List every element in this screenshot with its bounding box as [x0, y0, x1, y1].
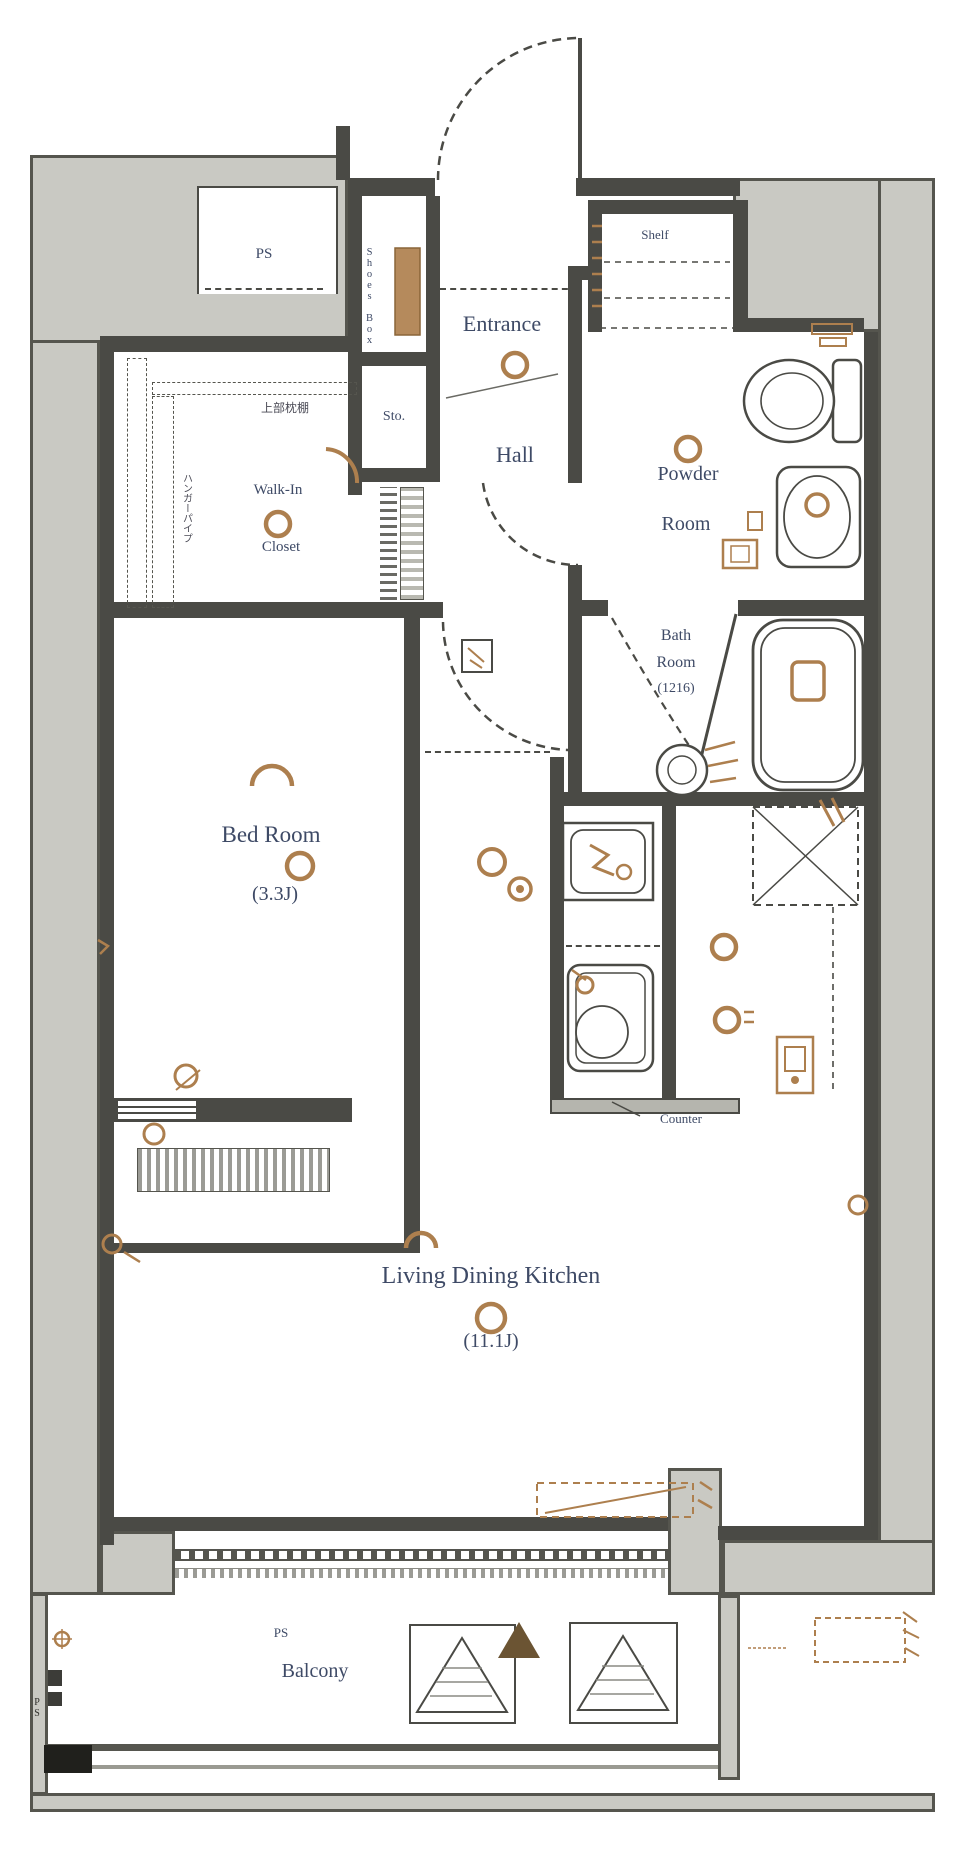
- corridor-panel-icon: [462, 640, 492, 672]
- powder-label-line1: Powder: [628, 464, 748, 485]
- bathtub-icon: [753, 620, 863, 790]
- kitchen-remote-icon: [777, 1037, 813, 1093]
- ceiling-light-bedroom: [287, 853, 313, 879]
- bath-size-label: (1216): [631, 682, 721, 697]
- evacuation-hatch-icon-2: [570, 1623, 677, 1723]
- fixtures-layer: [0, 0, 960, 1864]
- balcony-wall-fittings: [48, 1670, 62, 1706]
- air-conditioner-icon: [537, 1483, 693, 1517]
- balcony-label: Balcony: [245, 1661, 385, 1682]
- powder-label-line2: Room: [626, 514, 746, 535]
- drain-icon: [52, 1629, 72, 1649]
- entrance-door-icon: [438, 38, 580, 180]
- pipe-space-bottom-label: PS: [31, 1688, 42, 1728]
- ceiling-light-kitchen-1: [712, 935, 736, 959]
- washbasin-icon: [748, 467, 860, 567]
- ceiling-light-entrance: [503, 353, 527, 377]
- outdoor-unit-icon: [748, 1612, 919, 1662]
- bedroom-size-label: (3.3J): [195, 884, 355, 905]
- dome-light-bedroom: [252, 766, 292, 786]
- ldk-size-label: (11.1J): [331, 1331, 651, 1352]
- ceiling-light-wic: [266, 512, 290, 536]
- hall-step-line: [446, 374, 558, 398]
- powder-wall-box-icon: [723, 540, 757, 568]
- balcony-ps-label: PS: [251, 1626, 311, 1640]
- dome-light-ldk: [406, 1233, 436, 1248]
- storage-label: Sto.: [354, 410, 434, 425]
- ceiling-light-powder: [676, 437, 700, 461]
- shoes-box-label: Shoes Box: [364, 234, 375, 358]
- kitchen-switch-marks: [744, 1012, 754, 1022]
- bath-label-line2: Room: [631, 655, 721, 672]
- ceiling-light-ldk: [477, 1304, 505, 1332]
- corridor-light-icons: [479, 849, 531, 900]
- hall-label: Hall: [465, 443, 565, 466]
- wic-label-line2: Closet: [221, 540, 341, 556]
- entrance-label: Entrance: [432, 312, 572, 335]
- washing-machine-pan-icon: [563, 823, 653, 900]
- bath-label-line1: Bath: [631, 628, 721, 645]
- wic-door-arc-icon: [326, 449, 357, 483]
- evacuation-hatch-icon-1: [410, 1625, 515, 1723]
- wic-label-line1: Walk-In: [218, 483, 338, 499]
- ceiling-light-kitchen-2: [715, 1008, 739, 1032]
- ldk-label: Living Dining Kitchen: [331, 1264, 651, 1289]
- outlet-icons: [98, 940, 867, 1508]
- powder-door-icon: [483, 483, 578, 565]
- toilet-icon: [744, 324, 861, 442]
- floor-plan: PS Shelf Entrance Hall Shoes Box Sto. 上部…: [0, 0, 960, 1864]
- refrigerator-space-icon: [753, 798, 858, 905]
- wic-note-top: 上部枕棚: [225, 402, 345, 415]
- kitchen-sink-icon: [568, 965, 653, 1071]
- counter-label: Counter: [641, 1112, 721, 1126]
- shoe-shelf-icon: [395, 248, 420, 335]
- shelf-label: Shelf: [615, 228, 695, 242]
- pipe-space-label: PS: [234, 247, 294, 263]
- counter-pointer-line: [612, 1102, 640, 1116]
- wash-bowl-icon: [657, 742, 738, 795]
- wic-note-side: ハンガーパイプ: [180, 448, 191, 568]
- bedroom-label: Bed Room: [191, 823, 351, 847]
